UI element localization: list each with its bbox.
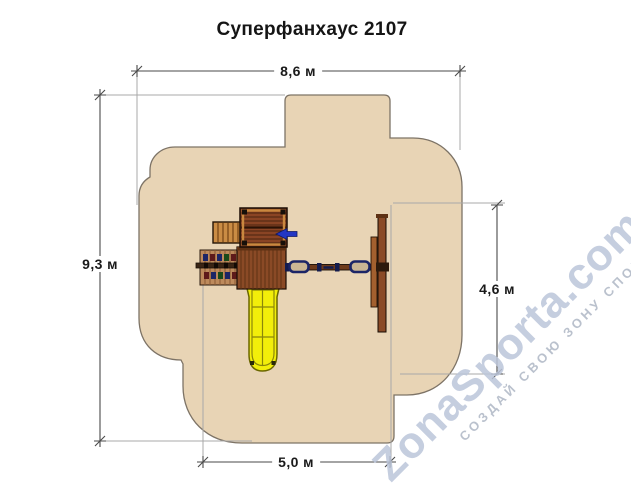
page-title: Суперфанхаус 2107	[216, 19, 407, 41]
dim-total-height-label: 9,3 м	[76, 256, 124, 272]
swing-frame-cap	[376, 214, 388, 218]
swing-frame-post	[378, 216, 386, 332]
swing-seat	[351, 262, 370, 273]
dim-total-width-label: 8,6 м	[274, 63, 322, 79]
swing-frame-hub	[376, 263, 389, 272]
slide-topview	[246, 284, 280, 371]
tower-platform	[237, 247, 286, 289]
plan-view-page: { "title": "Суперфанхаус 2107", "dimensi…	[0, 0, 631, 480]
dim-bottom-zone-label: 5,0 м	[272, 454, 320, 470]
swing-seat	[290, 262, 309, 273]
dim-swing-zone-label: 4,6 м	[473, 281, 521, 297]
swing-frame-back-post	[371, 237, 377, 307]
tower-roof	[240, 208, 287, 247]
